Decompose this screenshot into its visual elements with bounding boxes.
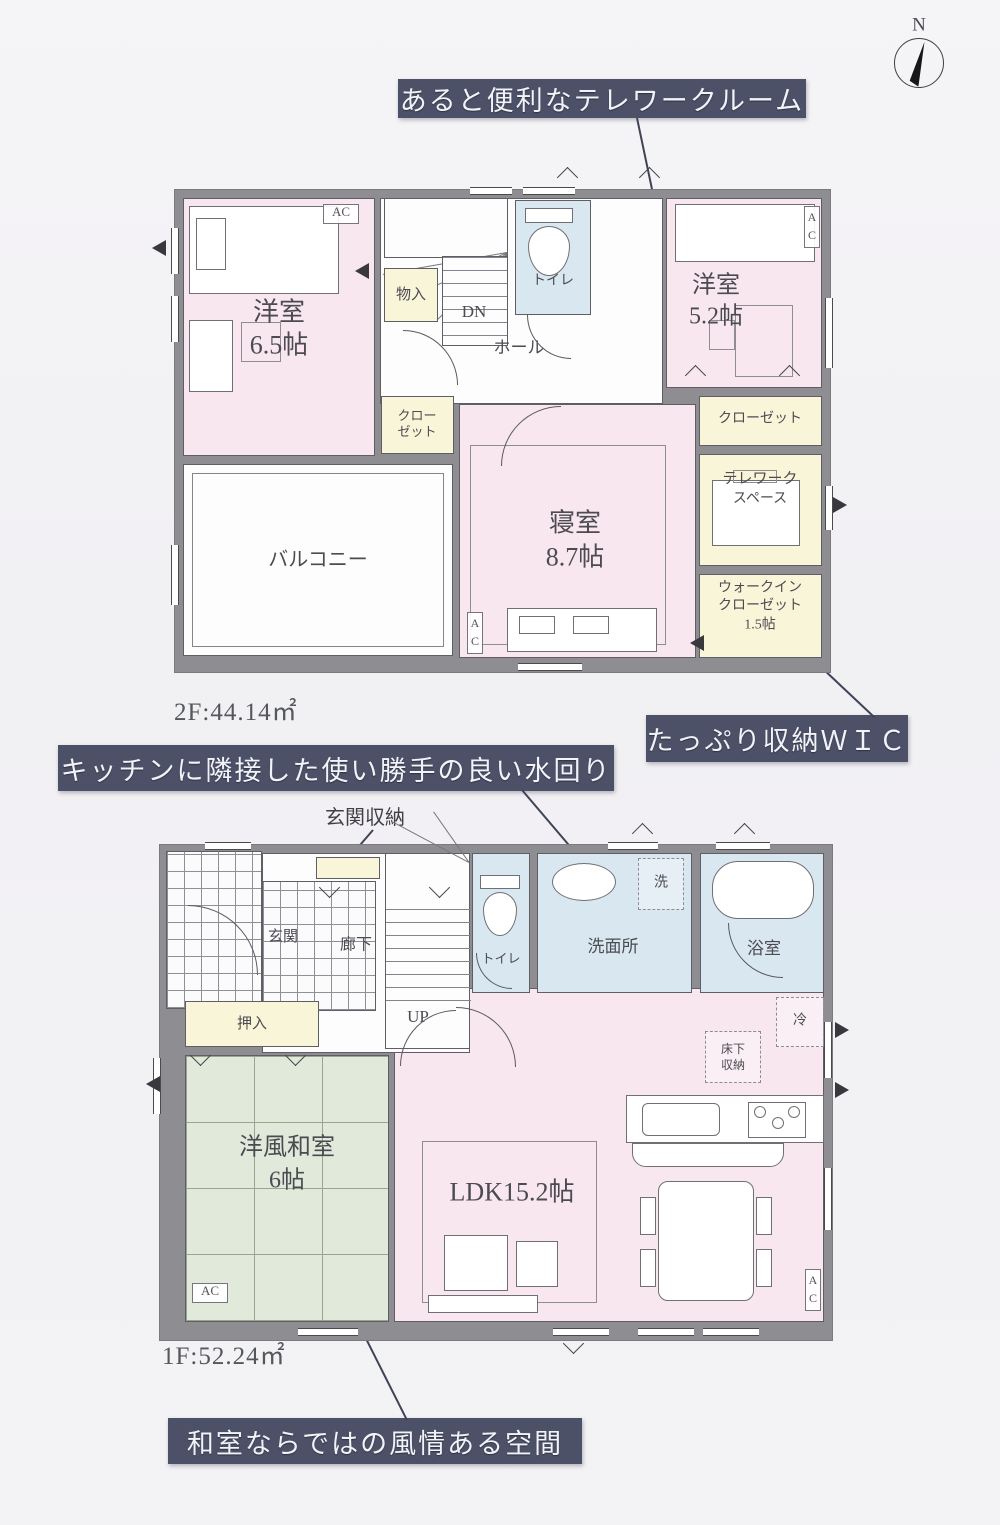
compass-north-label: N <box>912 15 926 38</box>
burner-icon <box>788 1106 800 1118</box>
vent-arrow-icon <box>152 240 166 256</box>
vent-chevron-icon <box>557 167 578 188</box>
desk-icon <box>735 305 793 377</box>
floorplan-page: N あると便利なテレワークルーム たっぷり収納ＷＩＣ キッチンに隣接した使い勝手… <box>0 0 1000 1525</box>
label-underfloor-l2: 収納 <box>721 1058 745 1072</box>
vent-arrow-icon <box>835 1082 849 1098</box>
window <box>171 228 179 274</box>
banner-washitsu: 和室ならではの風情ある空間 <box>168 1418 582 1464</box>
window <box>638 1328 694 1336</box>
toilet-tank-icon <box>525 208 573 223</box>
label-closet-right: クローゼット <box>718 412 802 429</box>
label-toilet2f: トイレ <box>532 274 574 291</box>
vent-arrow-icon <box>835 1022 849 1038</box>
window <box>518 663 582 671</box>
label-telework-l2: スペース <box>733 492 787 509</box>
stairs-2f-winder <box>384 198 508 258</box>
label-oshiire: 押入 <box>237 1015 267 1033</box>
floor1-plan: 玄関 廊下 UP トイレ 洗面所 洗 浴室 押入 洋風和室 6帖 AC LDK1… <box>160 845 832 1340</box>
burner-icon <box>772 1117 784 1129</box>
ac-label: AC <box>467 612 483 654</box>
label-wic-l1: ウォークイン <box>718 581 802 598</box>
label-rouka: 廊下 <box>340 935 372 954</box>
ac-label: AC <box>805 1269 821 1311</box>
pillow-icon <box>196 218 226 270</box>
dining-table-icon <box>658 1181 754 1301</box>
window <box>825 298 833 368</box>
label-closet-left-l1: クロー <box>397 408 436 424</box>
ac-label: AC <box>323 204 359 224</box>
label-underfloor-l1: 床下 <box>721 1042 745 1056</box>
vent-chevron-icon <box>734 823 755 844</box>
label-wic-l2: クローゼット <box>718 599 802 616</box>
chair-icon <box>640 1249 656 1287</box>
label-shinshitsu-size: 8.7帖 <box>546 541 605 572</box>
banner-wic: たっぷり収納ＷＩＣ <box>646 715 908 762</box>
ac-label: AC <box>804 206 820 248</box>
label-senmenjo: 洗面所 <box>588 937 639 957</box>
pillow-icon <box>519 616 555 634</box>
banner-kitchen: キッチンに隣接した使い勝手の良い水回り <box>58 745 614 791</box>
label-closet-left-l2: ゼット <box>397 424 436 440</box>
vent-arrow-icon <box>833 497 847 513</box>
window <box>825 486 833 530</box>
sofa-icon <box>444 1235 508 1291</box>
burner-icon <box>754 1106 766 1118</box>
window <box>824 1022 832 1078</box>
label-fridge: 冷 <box>793 1014 807 1031</box>
vent-arrow-icon <box>355 263 369 279</box>
telework-desk-icon <box>712 480 800 546</box>
window <box>470 187 512 195</box>
label-balcony: バルコニー <box>268 548 368 572</box>
stair-steps <box>386 909 471 1001</box>
ac-label: AC <box>192 1283 228 1303</box>
pillow-icon <box>573 616 609 634</box>
vent-chevron-icon <box>639 167 660 188</box>
label-youshitsu65-name: 洋室 <box>253 296 305 327</box>
wardrobe-icon <box>189 320 233 392</box>
window <box>205 842 251 850</box>
side-table-icon <box>516 1241 558 1287</box>
label-youshitsu52-size: 5.2帖 <box>689 303 743 332</box>
window <box>608 842 658 850</box>
label-wic-l3: 1.5帖 <box>744 618 776 635</box>
floor1-area-label: 1F:52.24㎡ <box>162 1336 286 1372</box>
bathtub-icon <box>712 861 814 919</box>
bed-icon <box>675 204 815 262</box>
label-monoire: 物入 <box>396 286 426 304</box>
banner-telework: あると便利なテレワークルーム <box>398 79 806 118</box>
genkan-storage <box>316 857 380 879</box>
window <box>171 296 179 342</box>
label-youshitsu65-size: 6.5帖 <box>250 329 309 360</box>
window <box>703 1328 759 1336</box>
label-shinshitsu-name: 寝室 <box>549 507 601 538</box>
sink-icon <box>552 863 616 901</box>
floor2-plan: 洋室 6.5帖 AC 物入 DN ホール トイレ 洋室 5.2帖 AC クローゼ… <box>175 190 830 672</box>
label-washitsu-name: 洋風和室 <box>239 1134 335 1163</box>
label-youshitsu52-name: 洋室 <box>692 272 740 301</box>
toilet-tank-icon <box>480 875 520 889</box>
stair-line <box>393 822 470 864</box>
stair-line <box>433 811 470 863</box>
chair-icon <box>640 1197 656 1235</box>
label-ldk: LDK15.2帖 <box>450 1176 575 1207</box>
label-dn: DN <box>462 302 487 322</box>
window <box>824 1168 832 1230</box>
floor2-area-label: 2F:44.14㎡ <box>174 692 298 728</box>
vent-chevron-icon <box>632 823 653 844</box>
chair-icon <box>756 1197 772 1235</box>
vent-arrow-icon <box>690 635 704 651</box>
counter-bench <box>632 1143 784 1167</box>
window <box>298 1328 358 1336</box>
window <box>171 545 179 605</box>
label-genkan-shuno: 玄関収納 <box>325 806 405 830</box>
window <box>553 1328 609 1336</box>
chair-icon <box>756 1249 772 1287</box>
label-genkan: 玄関 <box>268 928 298 946</box>
label-laundry: 洗 <box>654 876 668 893</box>
label-telework-l1: テレワーク <box>722 470 797 488</box>
label-washitsu-size: 6帖 <box>269 1167 305 1196</box>
tv-board-icon <box>428 1295 538 1313</box>
kitchen-sink-icon <box>642 1103 720 1136</box>
vent-arrow-icon <box>146 1076 160 1092</box>
